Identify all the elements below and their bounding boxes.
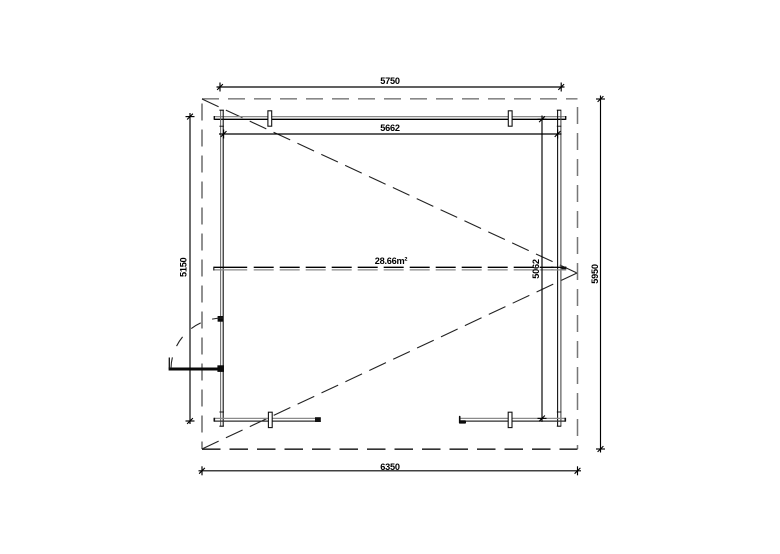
svg-text:5150: 5150 bbox=[179, 257, 189, 277]
svg-text:5750: 5750 bbox=[380, 76, 400, 86]
svg-text:5062: 5062 bbox=[531, 259, 541, 279]
svg-text:28.66m²: 28.66m² bbox=[375, 256, 408, 266]
svg-text:6350: 6350 bbox=[380, 462, 400, 472]
svg-text:5950: 5950 bbox=[590, 264, 600, 284]
svg-text:5662: 5662 bbox=[380, 123, 400, 133]
